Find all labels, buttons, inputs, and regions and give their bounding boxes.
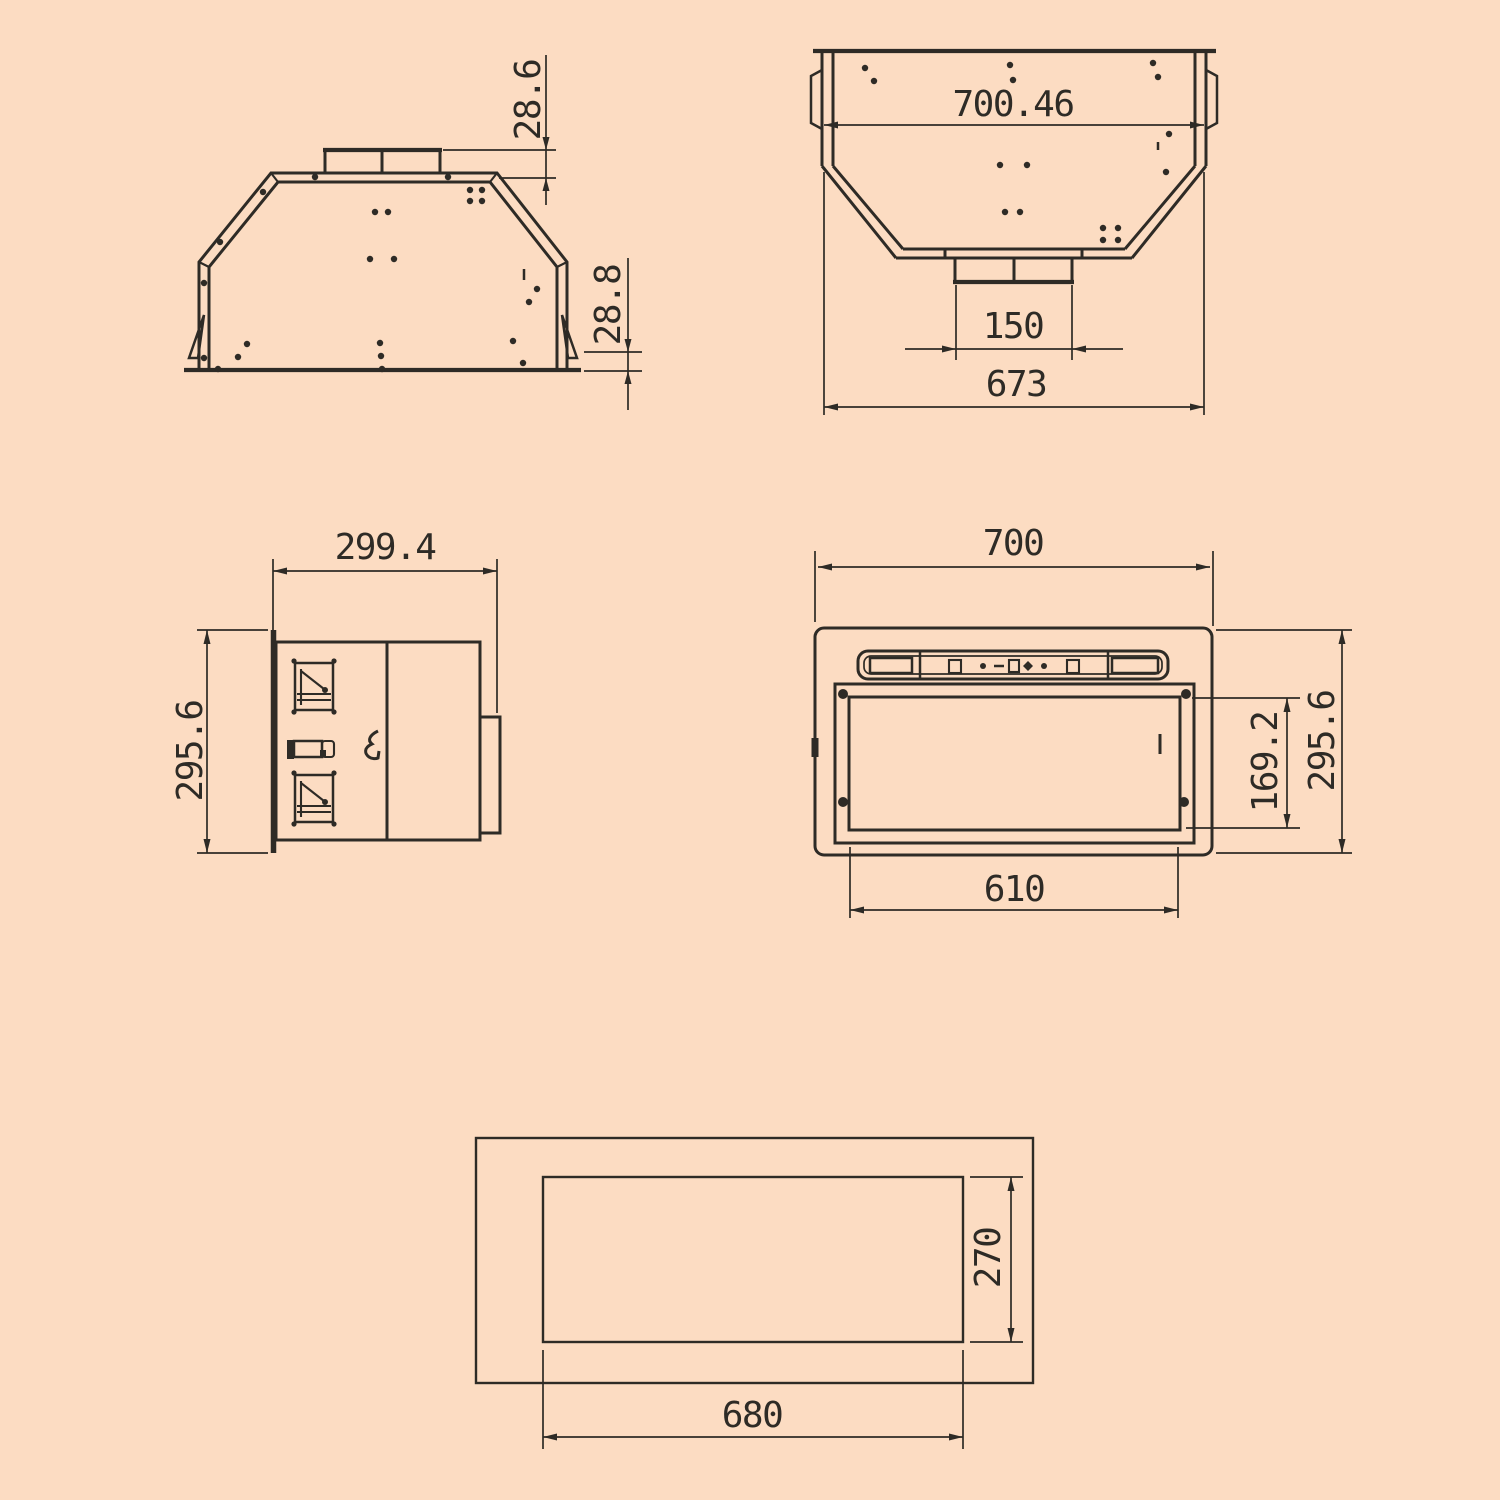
display-window [1009,660,1019,672]
filter-panel [849,697,1180,830]
filter-height-dimension: 169.2 [1186,698,1300,828]
top-width-dimension: 700.46 [824,84,1204,129]
lower-bracket [291,770,336,826]
flange-height-value: 28.8 [588,265,629,346]
cutout-depth-dimension: 270 [968,1177,1023,1342]
indicator-diamond [1023,661,1033,671]
overall-width-value: 700 [983,523,1044,564]
depth-dimension: 299.4 [273,527,497,713]
frame-screws [838,689,1191,807]
cutout-view: 270 680 [476,1138,1033,1449]
right-foot [562,315,577,358]
button-right [1067,660,1079,673]
exhaust-duct-top [955,258,1072,282]
control-panel [858,651,1168,679]
technical-drawing: 28.6 28.8 700 [0,0,1500,1500]
hood-corner-joints [199,173,567,267]
cutout-opening [543,1177,963,1342]
filter-width-dimension: 610 [850,847,1178,918]
duct-height-value: 28.6 [508,60,549,141]
overall-width-dimension: 700 [815,523,1213,626]
depth-value: 299.4 [335,527,436,568]
filter-width-value: 610 [984,869,1045,910]
top-view: 700.46 150 673 [811,51,1217,415]
side-view: 299.4 295.6 [170,527,500,853]
cabinet-outline [476,1138,1033,1383]
drawing-canvas: 28.6 28.8 700 [0,0,1500,1500]
bottom-face-view: 700 295.6 169.2 610 [815,523,1352,918]
exhaust-duct-front [325,150,440,173]
side-height-dimension: 295.6 [170,630,268,853]
bottom-panel [815,628,1212,855]
left-lamp [870,658,912,673]
cutout-width-value: 680 [722,1395,783,1436]
duct-width-dimension: 150 [905,285,1123,360]
cable-glyph [366,731,379,759]
middle-connector [287,740,334,759]
front-view: 28.6 28.8 [184,55,642,410]
front-screw-dots [201,174,540,372]
rear-flange [480,717,500,833]
filter-height-value: 169.2 [1245,712,1286,813]
indicator-dot-1 [980,663,986,669]
button-left [949,660,961,673]
slanted-walls [822,166,1206,258]
body-width-dimension: 673 [824,172,1204,415]
side-height-value: 295.6 [170,701,211,802]
cutout-depth-value: 270 [968,1228,1009,1289]
flange-height-dimension: 28.8 [584,258,642,410]
duct-width-value: 150 [983,306,1044,347]
upper-bracket [291,658,336,714]
top-width-value: 700.46 [952,84,1073,125]
indicator-dot-2 [1041,663,1047,669]
cutout-width-dimension: 680 [543,1350,963,1449]
filter-frame [835,684,1194,843]
overall-depth-value: 295.6 [1302,691,1343,792]
body-width-value: 673 [986,364,1047,405]
hood-inner-line [209,182,557,370]
right-lamp [1112,658,1158,673]
left-foot [189,315,204,358]
